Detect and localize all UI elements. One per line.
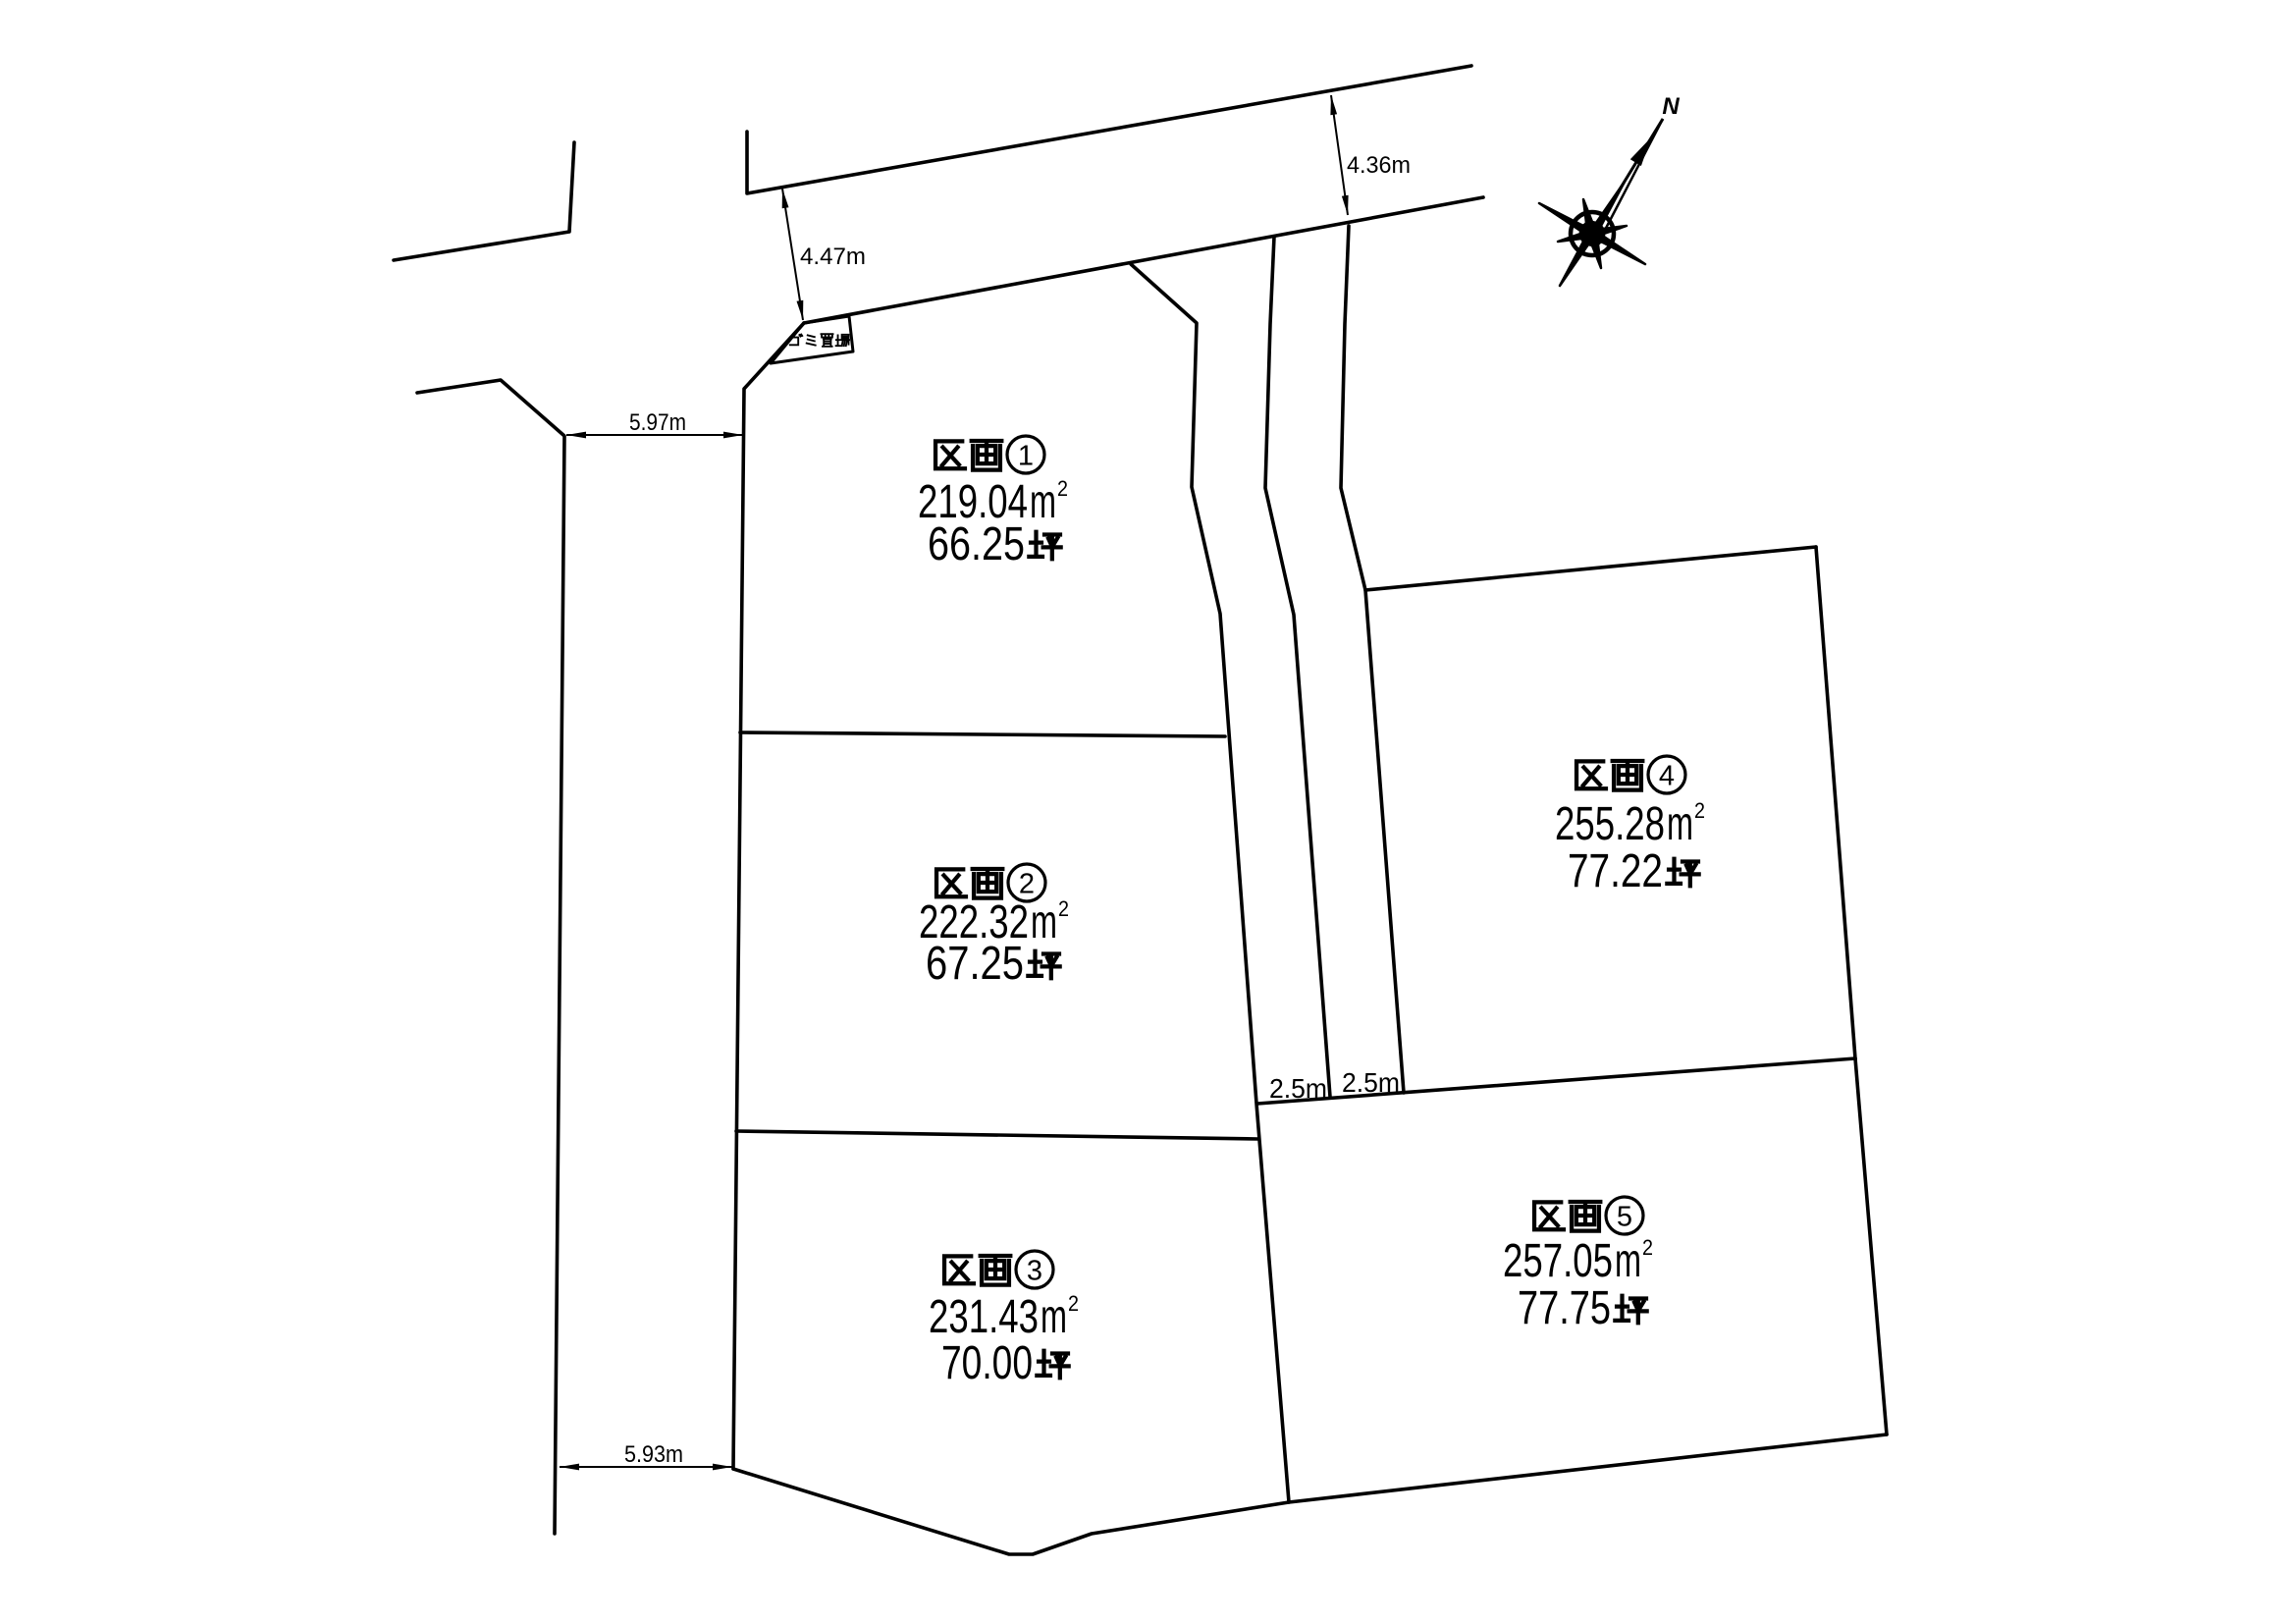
svg-text:2.5m: 2.5m xyxy=(1342,1067,1400,1098)
svg-text:2: 2 xyxy=(1058,896,1069,921)
svg-text:4.36m: 4.36m xyxy=(1347,152,1411,179)
svg-text:77.22: 77.22 xyxy=(1568,845,1663,897)
svg-text:m: m xyxy=(1615,1235,1641,1287)
svg-text:m: m xyxy=(1031,896,1057,948)
svg-text:5: 5 xyxy=(1617,1201,1632,1232)
svg-text:66.25: 66.25 xyxy=(928,518,1025,570)
svg-text:5.97m: 5.97m xyxy=(629,409,686,436)
svg-text:2: 2 xyxy=(1019,868,1035,899)
svg-text:2.5m: 2.5m xyxy=(1269,1073,1327,1104)
svg-text:257.05: 257.05 xyxy=(1503,1235,1613,1287)
svg-text:255.28: 255.28 xyxy=(1555,798,1665,850)
svg-text:77.75: 77.75 xyxy=(1518,1282,1611,1334)
svg-text:4: 4 xyxy=(1659,760,1675,791)
svg-text:67.25: 67.25 xyxy=(926,938,1024,990)
svg-text:231.43: 231.43 xyxy=(929,1291,1039,1343)
svg-text:5.93m: 5.93m xyxy=(624,1441,683,1468)
svg-text:m: m xyxy=(1667,798,1693,850)
svg-text:2: 2 xyxy=(1694,798,1705,823)
svg-text:1: 1 xyxy=(1018,440,1034,471)
svg-text:2: 2 xyxy=(1068,1291,1079,1316)
svg-text:2: 2 xyxy=(1642,1235,1653,1260)
svg-text:70.00: 70.00 xyxy=(941,1337,1033,1389)
svg-text:m: m xyxy=(1041,1291,1067,1343)
svg-text:N: N xyxy=(1662,93,1680,120)
svg-text:2: 2 xyxy=(1057,476,1068,501)
svg-text:4.47m: 4.47m xyxy=(800,244,866,270)
svg-text:3: 3 xyxy=(1027,1255,1042,1286)
svg-text:m: m xyxy=(1030,476,1056,528)
